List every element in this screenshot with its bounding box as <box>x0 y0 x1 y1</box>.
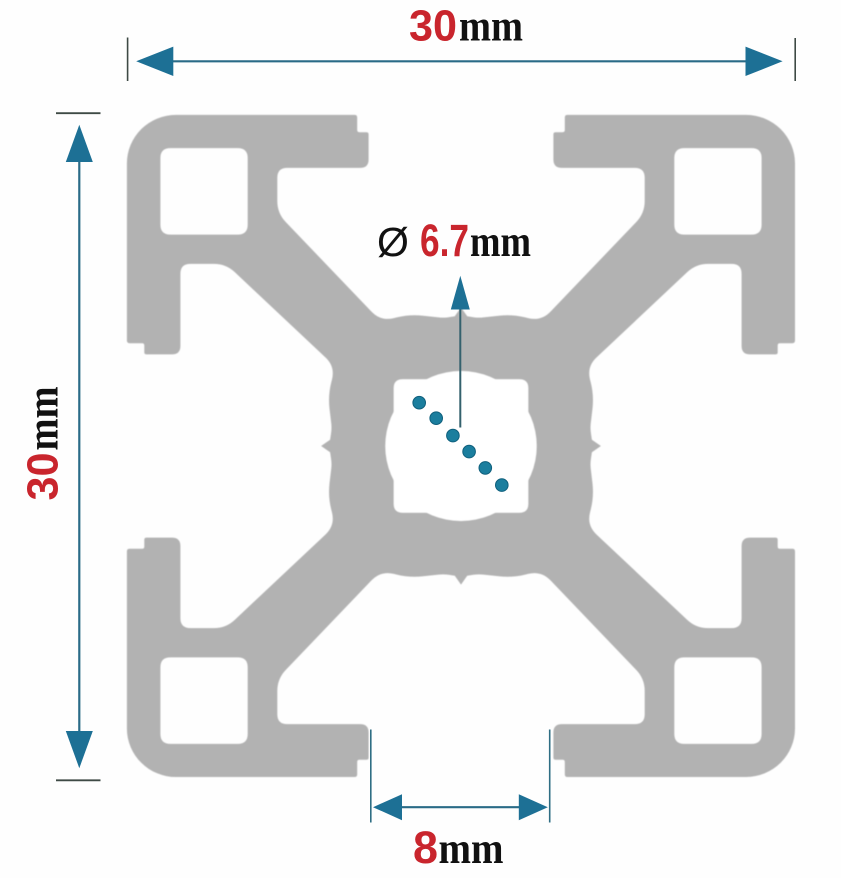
svg-text:30: 30 <box>409 2 457 51</box>
svg-text:6.7: 6.7 <box>420 215 469 266</box>
svg-text:mm: mm <box>470 217 531 266</box>
svg-text:mm: mm <box>19 387 68 451</box>
svg-text:Ø: Ø <box>377 219 409 265</box>
svg-text:30: 30 <box>19 453 68 501</box>
svg-text:mm: mm <box>459 2 523 51</box>
svg-text:8: 8 <box>413 822 438 873</box>
svg-text:mm: mm <box>439 824 504 873</box>
